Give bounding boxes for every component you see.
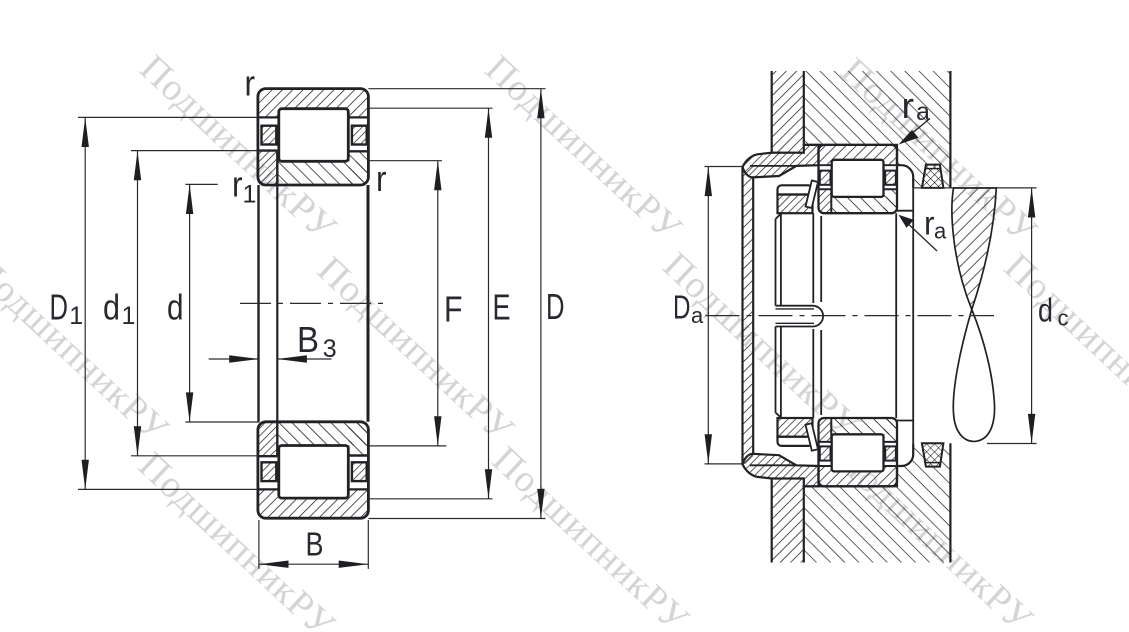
svg-text:B: B (297, 319, 319, 360)
svg-text:F: F (444, 289, 463, 330)
svg-text:d: d (167, 287, 184, 328)
svg-text:1: 1 (122, 302, 136, 330)
svg-text:E: E (493, 287, 511, 328)
svg-text:1: 1 (69, 302, 83, 330)
svg-text:a: a (691, 303, 704, 328)
svg-text:3: 3 (323, 335, 337, 363)
svg-text:c: c (1058, 306, 1069, 331)
svg-text:d: d (1038, 292, 1053, 329)
svg-text:r: r (924, 204, 935, 241)
svg-text:D: D (673, 289, 691, 326)
svg-text:d: d (103, 287, 120, 328)
svg-text:r: r (232, 164, 243, 205)
svg-text:r: r (245, 63, 256, 104)
svg-text:D: D (546, 286, 565, 327)
svg-text:a: a (916, 98, 930, 126)
svg-text:1: 1 (243, 181, 257, 209)
svg-text:a: a (934, 218, 947, 243)
svg-text:r: r (902, 85, 915, 126)
svg-text:B: B (306, 525, 324, 562)
svg-text:r: r (376, 158, 387, 199)
svg-text:D: D (50, 287, 69, 328)
